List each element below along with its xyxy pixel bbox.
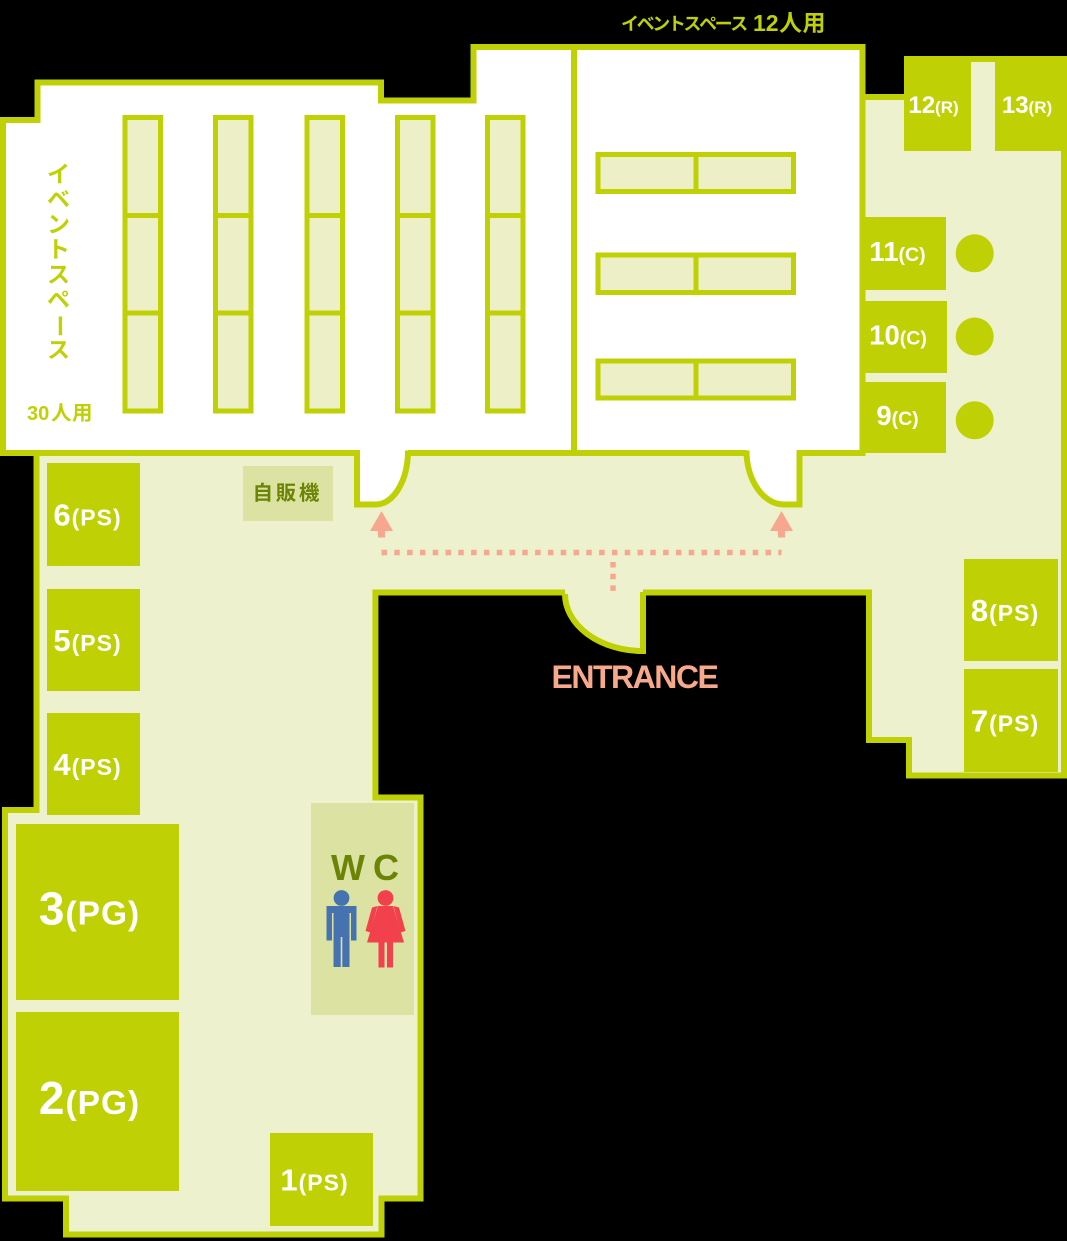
svg-text:30: 30 [27, 403, 49, 425]
svg-text:12: 12 [753, 10, 779, 36]
svg-text:WC: WC [331, 847, 407, 888]
svg-text:ENTRANCE: ENTRANCE [552, 659, 719, 695]
